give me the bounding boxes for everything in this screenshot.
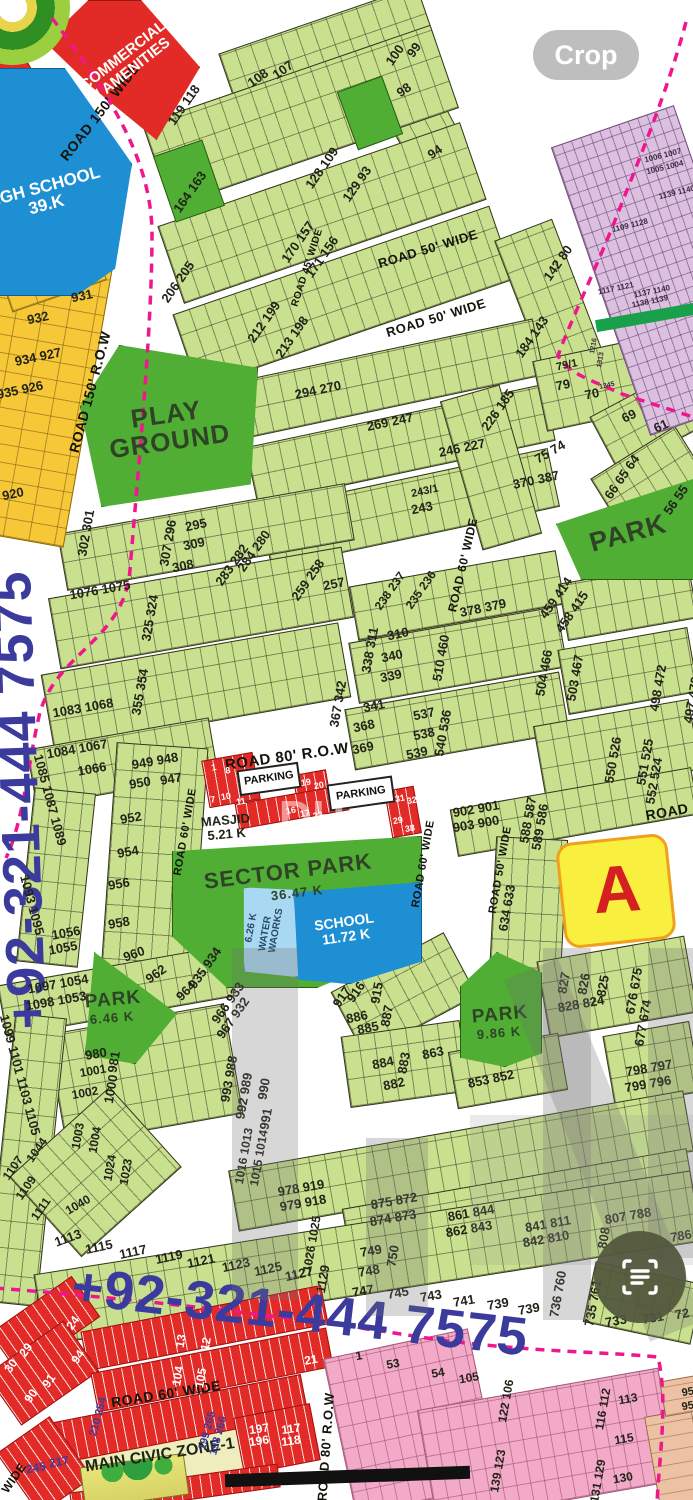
plot-label: 70 <box>584 386 601 402</box>
plot-label: 105 <box>193 1367 209 1389</box>
plot-label: 79 <box>555 377 572 393</box>
watermark-shape <box>232 948 298 1300</box>
plot-label: 1115 <box>84 1238 114 1257</box>
plot-label: 196 <box>248 1433 270 1448</box>
plot-label: 20 <box>313 781 324 792</box>
plot-label: 31 <box>394 794 405 805</box>
plot-label: 10 <box>220 792 231 803</box>
plot-label: 217 <box>48 1454 70 1470</box>
map-canvas: Crop ROAD 150' WIDEROAD 150' R.O.WROAD 5… <box>0 0 693 1500</box>
plot-label: 54 <box>430 1366 445 1381</box>
plot-label: 95 <box>681 1400 693 1413</box>
scan-text-button[interactable] <box>594 1231 686 1323</box>
plot-label: 21 <box>303 1353 318 1368</box>
plot-label: 12 <box>199 1336 214 1351</box>
plot-label: 16 <box>285 806 296 817</box>
plot-label: 53 <box>385 1357 400 1372</box>
plot-label: 11 <box>236 797 247 808</box>
plot-label: 245 <box>25 1460 47 1476</box>
plot-label: 539 <box>405 744 429 762</box>
plot-label: 22 <box>312 811 323 822</box>
plot-label: 13 <box>174 1333 189 1348</box>
crop-button[interactable]: Crop <box>533 30 639 80</box>
plot-label: 38 <box>404 824 415 835</box>
plot-label: 113 <box>617 1391 638 1407</box>
plot-label: 739 <box>517 1300 541 1317</box>
plot-label: A <box>591 853 643 925</box>
plot-label: 115 <box>613 1431 634 1447</box>
salmon-block <box>644 1409 693 1500</box>
plot-label: 95 <box>681 1386 693 1399</box>
zone-label: MASJID 5.21 K <box>200 811 251 842</box>
plot-label: 32 <box>406 796 417 807</box>
plot-label: 118 <box>281 1433 302 1448</box>
plot-label: 23 <box>326 814 337 825</box>
plot-label: 105 <box>458 1370 480 1386</box>
text-scan-icon <box>616 1253 664 1301</box>
watermark-shape <box>366 1138 428 1316</box>
road-label: ROAD 80' R.O.W <box>315 1392 336 1500</box>
plot-label: 29 <box>392 816 403 827</box>
plot-label: 17 <box>299 809 310 820</box>
plot-label: 19 <box>300 778 311 789</box>
plot-label: 28 <box>376 814 387 825</box>
plot-label: 104 <box>170 1365 186 1387</box>
plot-label: 116 <box>303 1378 319 1399</box>
plot-label: 130 <box>612 1470 634 1486</box>
